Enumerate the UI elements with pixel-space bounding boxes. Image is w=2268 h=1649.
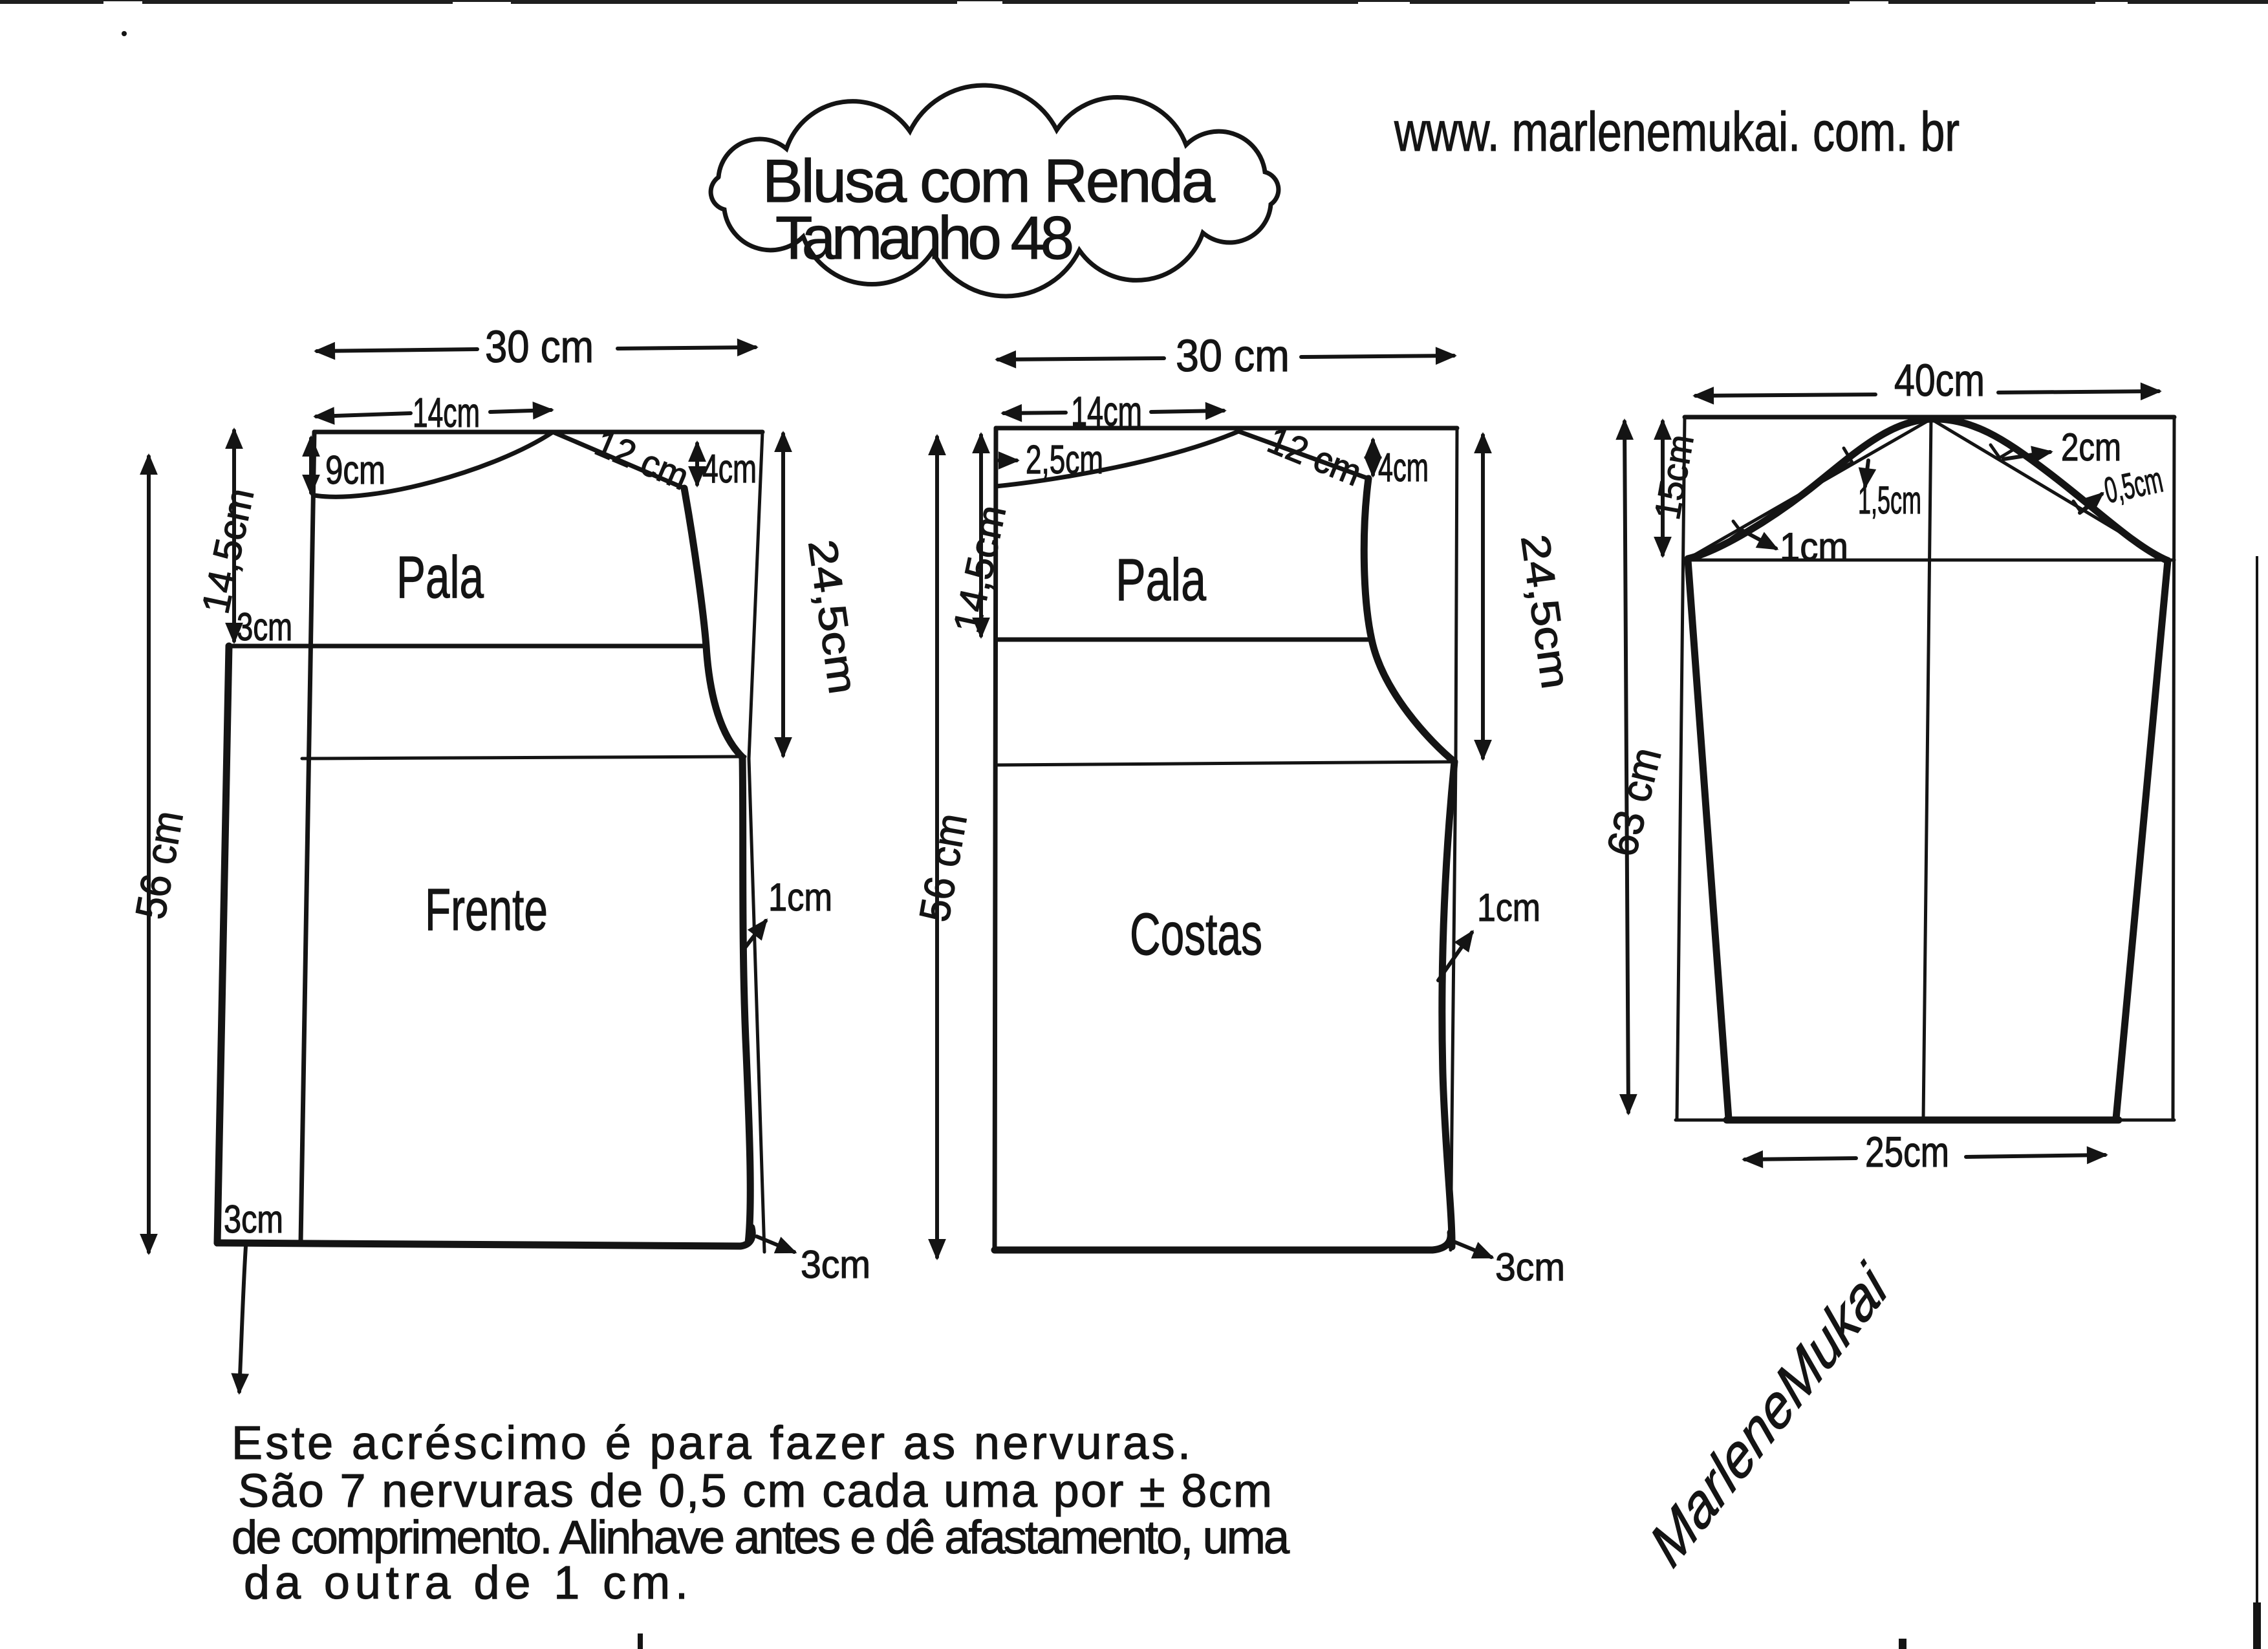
svg-text:15cm: 15cm	[1647, 431, 1701, 523]
svg-text:4cm: 4cm	[1378, 446, 1429, 490]
svg-text:3cm: 3cm	[1495, 1245, 1565, 1289]
svg-text:14,5cm: 14,5cm	[193, 484, 262, 618]
svg-text:www. marlenemukai. com. br: www. marlenemukai. com. br	[1394, 102, 1960, 163]
svg-text:3cm: 3cm	[237, 605, 292, 649]
svg-text:30 cm: 30 cm	[1176, 330, 1290, 381]
svg-text:3cm: 3cm	[801, 1243, 870, 1286]
svg-text:Pala: Pala	[1116, 547, 1207, 613]
svg-text:Este acréscimo é para fazer as: Este acréscimo é para fazer as nervuras.	[232, 1417, 1191, 1469]
svg-text:9cm: 9cm	[325, 448, 385, 493]
svg-text:30 cm: 30 cm	[485, 321, 594, 372]
svg-text:Frente: Frente	[425, 877, 548, 943]
svg-text:MarleneMukai: MarleneMukai	[1639, 1251, 1899, 1580]
svg-text:40cm: 40cm	[1894, 355, 1985, 405]
svg-text:56 cm: 56 cm	[126, 807, 192, 922]
svg-text:São 7 nervuras de 0,5 cm cada: São 7 nervuras de 0,5 cm cada uma por ± …	[238, 1465, 1272, 1517]
svg-text:14cm: 14cm	[413, 389, 480, 436]
svg-text:14,5cm: 14,5cm	[945, 501, 1014, 637]
svg-text:2,5cm: 2,5cm	[1026, 438, 1103, 482]
svg-text:Tamanho 48: Tamanho 48	[775, 204, 1074, 272]
svg-text:4cm: 4cm	[702, 447, 757, 491]
svg-text:14cm: 14cm	[1071, 388, 1142, 435]
svg-text:2cm: 2cm	[2061, 426, 2121, 469]
svg-text:1cm: 1cm	[768, 876, 832, 919]
svg-text:24,5cm: 24,5cm	[799, 537, 865, 696]
svg-text:63 cm: 63 cm	[1597, 743, 1670, 861]
svg-text:1cm: 1cm	[1477, 886, 1540, 929]
svg-text:24,5cm: 24,5cm	[1512, 532, 1578, 691]
svg-text:3cm: 3cm	[224, 1198, 283, 1241]
svg-text:1,5cm: 1,5cm	[1858, 479, 1921, 522]
svg-text:Costas: Costas	[1130, 901, 1262, 967]
svg-text:de comprimento. Alinhave antes: de comprimento. Alinhave antes e dê afas…	[232, 1512, 1290, 1564]
svg-text:1cm: 1cm	[1780, 525, 1848, 568]
svg-text:56 cm: 56 cm	[910, 810, 976, 925]
svg-text:Pala: Pala	[396, 544, 484, 610]
svg-text:da outra de 1 cm.: da outra de 1 cm.	[244, 1557, 688, 1609]
svg-text:25cm: 25cm	[1865, 1128, 1949, 1176]
